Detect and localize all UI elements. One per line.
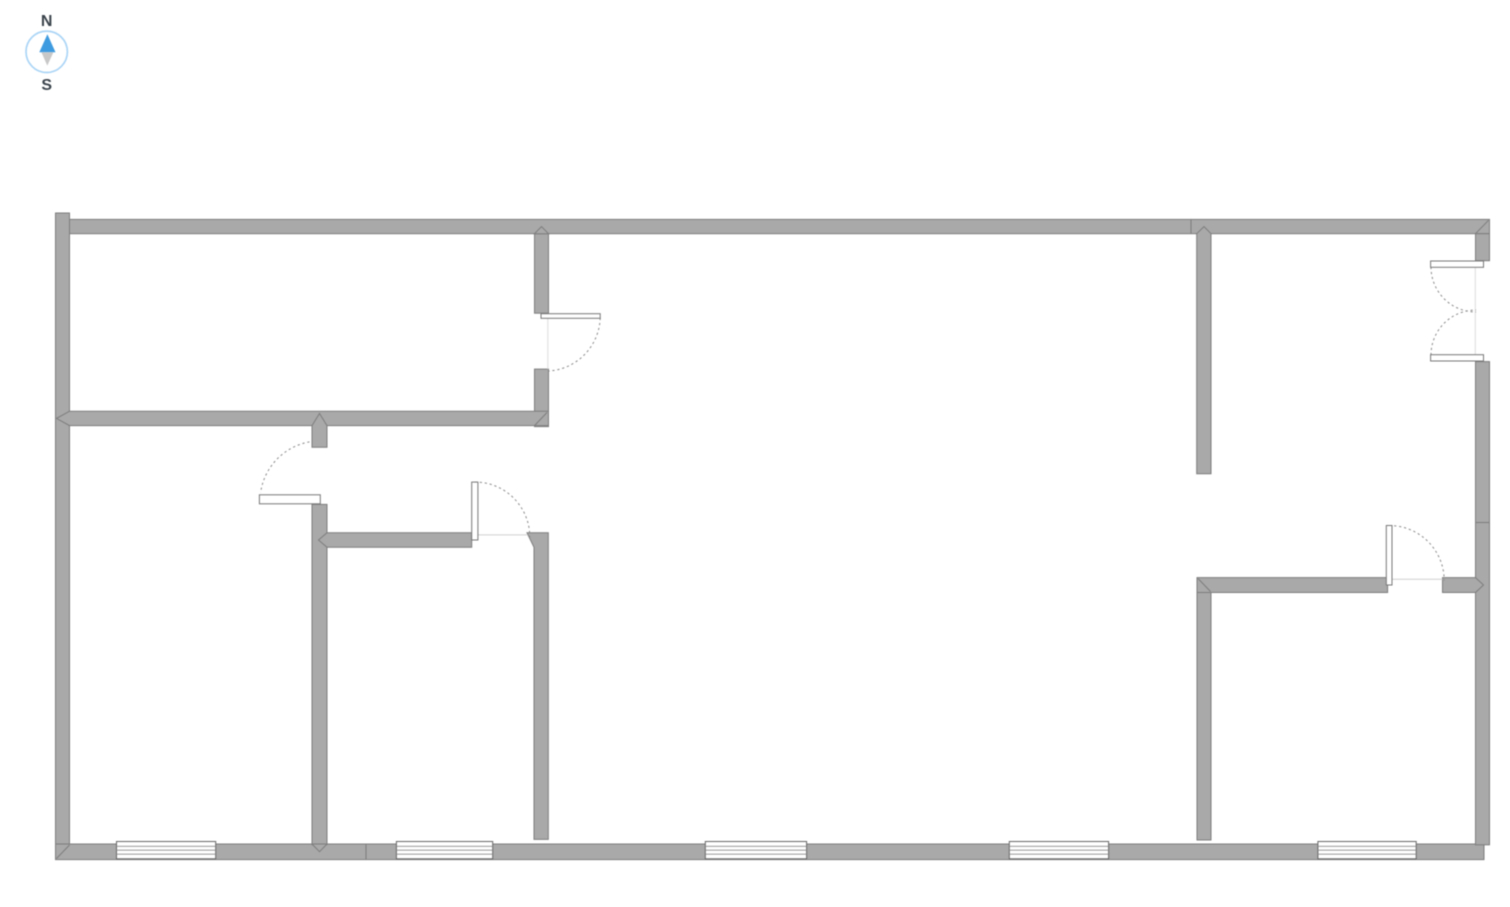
svg-text:N: N	[41, 13, 53, 30]
svg-text:S: S	[41, 77, 52, 94]
